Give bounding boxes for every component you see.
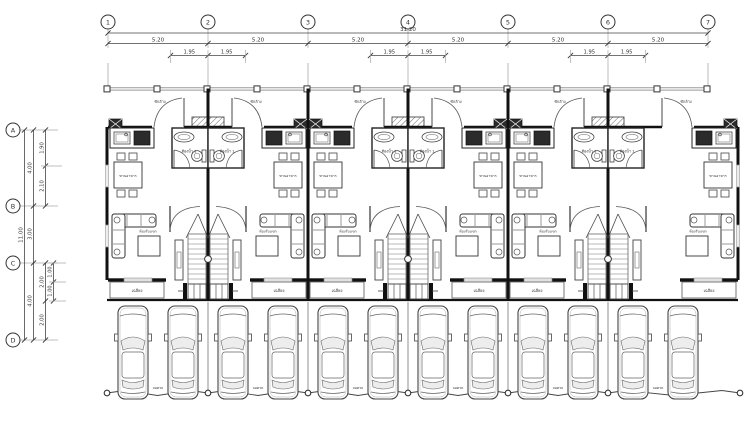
row-dim-label: 4.00 (28, 295, 34, 307)
entry-side-wall (629, 283, 633, 300)
pillow (726, 249, 732, 255)
bathroom-label: ห้องน้ำ 1 (182, 148, 198, 154)
dining-label: ทานอาหาร (119, 174, 136, 178)
pillow (549, 217, 555, 223)
entry-side-wall (183, 283, 187, 300)
unit-2: ซักล้างห้องน้ำ 1ทานอาหารห้องรับแขกเฉลียง (208, 98, 308, 300)
grid-bubble-label: 3 (306, 19, 310, 27)
row-dim-label: 4.00 (28, 162, 34, 174)
chair (291, 190, 299, 197)
halfbay-dim-label: 1.95 (584, 50, 596, 56)
windshield (621, 337, 645, 350)
mirror (598, 334, 602, 341)
windshield (221, 337, 245, 350)
car (265, 306, 302, 399)
unit-3: ซักล้างห้องน้ำ 1ทานอาหารห้องรับแขกเฉลียง (308, 98, 408, 300)
mirror (365, 334, 369, 341)
boundary-post (205, 390, 211, 396)
mirror (465, 334, 469, 341)
boundary-post (505, 390, 511, 396)
bathroom-label: ห้องน้ำ 1 (582, 148, 598, 154)
newel-column (605, 256, 612, 263)
chair (317, 190, 325, 197)
fence-post (354, 86, 360, 92)
stair-rail (375, 240, 383, 280)
entry-steps (410, 284, 428, 299)
boundary-post (104, 390, 110, 396)
windshield (521, 337, 545, 350)
car (515, 306, 552, 399)
basin (222, 132, 242, 142)
entry-steps (188, 284, 206, 299)
living-label: ห้องรับแขก (689, 229, 706, 234)
chair (721, 153, 729, 160)
roof (322, 352, 344, 378)
pillow (461, 217, 467, 223)
pillow (261, 217, 267, 223)
mirror (498, 334, 502, 341)
halfbay-dim-label: 1.95 (421, 50, 433, 56)
car (365, 306, 402, 399)
mirror (665, 334, 669, 341)
side-window (106, 165, 108, 187)
dining-label: ทานอาหาร (319, 174, 336, 178)
dining-label: ทานอาหาร (709, 174, 726, 178)
unit-1: ซักล้างห้องน้ำ 1ทานอาหารห้องรับแขกเฉลียง (108, 98, 208, 300)
grid-bubble-label: D (10, 336, 15, 344)
sub-dim-label: 2.10 (40, 180, 46, 192)
mirror (565, 334, 569, 341)
parking-label: จอดรถ (653, 386, 664, 390)
mirror (115, 334, 119, 341)
car (115, 306, 152, 399)
inner-dim-label: 1.00 (48, 266, 54, 277)
car (615, 306, 652, 399)
mirror (215, 334, 219, 341)
roof (472, 352, 494, 378)
grid-bubble-label: 2 (206, 19, 210, 27)
stair-rail (233, 240, 241, 280)
bathroom-label: ห้องน้ำ 1 (420, 148, 436, 154)
boundary-post (405, 390, 411, 396)
party-wall (607, 89, 610, 301)
parking-label: จอดรถ (353, 386, 364, 390)
mirror (165, 334, 169, 341)
unit-5: ซักล้างห้องน้ำ 1ทานอาหารห้องรับแขกเฉลียง (508, 98, 608, 300)
pillow (314, 249, 320, 255)
bay-dim-label: 5.20 (152, 38, 165, 44)
bay-dim-label: 5.20 (252, 38, 265, 44)
mirror (298, 334, 302, 341)
chair (329, 153, 337, 160)
windshield (421, 337, 445, 350)
halfbay-dim-label: 1.95 (184, 50, 196, 56)
windshield (121, 337, 145, 350)
mirror (315, 334, 319, 341)
laundry-label: ซักล้าง (250, 99, 261, 104)
parking-area: จอดรถจอดรถจอดรถจอดรถจอดรถจอดรถ (104, 302, 743, 399)
unit-6: ซักล้างห้องน้ำ 1ทานอาหารห้องรับแขกเฉลียง (608, 98, 738, 300)
chair (279, 153, 287, 160)
parking-label: จอดรถ (453, 386, 464, 390)
chair (721, 190, 729, 197)
basin (174, 132, 194, 142)
mirror (398, 334, 402, 341)
unit-4: ซักล้างห้องน้ำ 1ทานอาหารห้องรับแขกเฉลียง (408, 98, 508, 300)
chair (709, 153, 717, 160)
boundary-post (305, 390, 311, 396)
laundry-label: ซักล้าง (450, 99, 461, 104)
newel-column (205, 256, 212, 263)
bathroom-label: ห้องน้ำ 1 (220, 148, 236, 154)
stove (334, 131, 350, 145)
side-window (737, 225, 739, 247)
entry-steps (210, 284, 228, 299)
mirror (248, 334, 252, 341)
living-label: ห้องรับแขก (459, 229, 476, 234)
car (565, 306, 602, 399)
chair (129, 153, 137, 160)
pillow (314, 217, 320, 223)
fence-post (704, 86, 710, 92)
living-label: ห้องรับแขก (339, 229, 356, 234)
stove (266, 131, 282, 145)
pillow (349, 217, 355, 223)
stove (696, 131, 712, 145)
chair (117, 190, 125, 197)
pillow (296, 249, 302, 255)
windshield (471, 337, 495, 350)
windshield (571, 337, 595, 350)
windshield (671, 337, 695, 350)
grid-bubble-label: 7 (706, 19, 710, 27)
car (165, 306, 202, 399)
coffee-table (686, 236, 708, 256)
roof (672, 352, 694, 378)
halfbay-dim-label: 1.95 (384, 50, 396, 56)
roof (122, 352, 144, 378)
chair (517, 153, 525, 160)
newel-column (405, 256, 412, 263)
mirror (348, 334, 352, 341)
pillow (114, 217, 120, 223)
living-label: ห้องรับแขก (539, 229, 556, 234)
pillow (514, 249, 520, 255)
mirror (148, 334, 152, 341)
roof (222, 352, 244, 378)
porch-label: เฉลียง (474, 288, 485, 293)
mirror (548, 334, 552, 341)
dining-label: ทานอาหาร (519, 174, 536, 178)
mirror (698, 334, 702, 341)
bay-dim-label: 5.20 (552, 38, 565, 44)
boundary-post (737, 390, 743, 396)
chair (291, 153, 299, 160)
windshield (321, 337, 345, 350)
car (465, 306, 502, 399)
chair (709, 190, 717, 197)
mirror (615, 334, 619, 341)
pillow (691, 217, 697, 223)
basin (574, 132, 594, 142)
dining-label: ทานอาหาร (479, 174, 496, 178)
roof (422, 352, 444, 378)
windshield (371, 337, 395, 350)
bay-dim-label: 5.20 (352, 38, 365, 44)
side-window (737, 165, 739, 187)
basin (374, 132, 394, 142)
roof (572, 352, 594, 378)
party-wall (207, 89, 210, 301)
dining-label: ทานอาหาร (279, 174, 296, 178)
overall-dim-label: 11.00 (19, 227, 25, 243)
parking-label: จอดรถ (553, 386, 564, 390)
left-dimension-grid: ABCD11.004.003.004.001.902.102.002.001.0… (6, 123, 66, 347)
top-dimension-grid: 123456731.205.205.205.205.205.205.201.95… (101, 15, 715, 63)
grid-bubble-label: 5 (506, 19, 510, 27)
windshield (171, 337, 195, 350)
entry-steps (610, 284, 628, 299)
sub-dim-label: 2.00 (40, 314, 46, 326)
roof (372, 352, 394, 378)
chair (529, 153, 537, 160)
entry-side-wall (429, 283, 433, 300)
mirror (265, 334, 269, 341)
grid-bubble-label: 6 (606, 19, 610, 27)
roof (272, 352, 294, 378)
pillow (149, 217, 155, 223)
party-wall (407, 89, 410, 301)
drawing-sheet: 123456731.205.205.205.205.205.205.201.95… (0, 0, 750, 424)
car (215, 306, 252, 399)
grid-bubble-label: C (11, 259, 16, 267)
bay-dim-label: 5.20 (452, 38, 465, 44)
side-window (106, 225, 108, 247)
mirror (198, 334, 202, 341)
entry-side-wall (229, 283, 233, 300)
mirror (515, 334, 519, 341)
chair (129, 190, 137, 197)
porch-label: เฉลียง (532, 288, 543, 293)
bathroom-label: ห้องน้ำ 1 (382, 148, 398, 154)
floorplan-drawing: 123456731.205.205.205.205.205.205.201.95… (0, 0, 750, 424)
pillow (496, 217, 502, 223)
pillow (114, 249, 120, 255)
stove (134, 131, 150, 145)
coffee-table (538, 236, 560, 256)
fence-post (154, 86, 160, 92)
chair (491, 153, 499, 160)
stair-rail (633, 240, 641, 280)
fence-post (454, 86, 460, 92)
sub-dim-label: 2.00 (40, 276, 46, 288)
chair (279, 190, 287, 197)
halfbay-dim-label: 1.95 (621, 50, 633, 56)
row-dim-label: 3.00 (28, 228, 34, 240)
entry-steps (388, 284, 406, 299)
bathroom-label: ห้องน้ำ 1 (620, 148, 636, 154)
halfbay-dim-label: 1.95 (221, 50, 233, 56)
stove (466, 131, 482, 145)
grid-bubble-label: 1 (106, 19, 110, 27)
left-wall (106, 127, 109, 280)
chair (517, 190, 525, 197)
basin (622, 132, 642, 142)
porch-label: เฉลียง (332, 288, 343, 293)
parking-label: จอดรถ (253, 386, 264, 390)
boundary-post (605, 390, 611, 396)
pillow (726, 217, 732, 223)
coffee-table (338, 236, 360, 256)
living-label: ห้องรับแขก (259, 229, 276, 234)
fence-post (104, 86, 110, 92)
pillow (496, 249, 502, 255)
grid-bubble-label: B (11, 202, 15, 210)
coffee-table (256, 236, 278, 256)
porch-label: เฉลียง (132, 288, 143, 293)
overall-dim-label: 31.20 (400, 27, 416, 33)
entry-side-wall (583, 283, 587, 300)
mirror (648, 334, 652, 341)
chair (117, 153, 125, 160)
bay-dim-label: 5.20 (652, 38, 665, 44)
coffee-table (456, 236, 478, 256)
laundry-label: ซักล้าง (154, 99, 165, 104)
roof (522, 352, 544, 378)
chair (479, 153, 487, 160)
right-wall (737, 127, 740, 280)
porch-label: เฉลียง (704, 288, 715, 293)
car (665, 306, 702, 399)
chair (479, 190, 487, 197)
fence-post (554, 86, 560, 92)
stair-rail (433, 240, 441, 280)
stair-rail (575, 240, 583, 280)
pillow (296, 217, 302, 223)
fence-post (254, 86, 260, 92)
porch-label: เฉลียง (274, 288, 285, 293)
windshield (271, 337, 295, 350)
fence-post (654, 86, 660, 92)
entry-side-wall (383, 283, 387, 300)
chair (329, 190, 337, 197)
mirror (448, 334, 452, 341)
grid-bubble-label: 4 (406, 19, 410, 27)
parking-label: จอดรถ (153, 386, 164, 390)
laundry-label: ซักล้าง (354, 99, 365, 104)
stair-rail (175, 240, 183, 280)
stove (534, 131, 550, 145)
chair (491, 190, 499, 197)
car (315, 306, 352, 399)
roof (172, 352, 194, 378)
mirror (415, 334, 419, 341)
chair (529, 190, 537, 197)
inner-dim-label: 1.00 (48, 285, 54, 296)
chair (317, 153, 325, 160)
sub-dim-label: 1.90 (40, 142, 46, 154)
pillow (514, 217, 520, 223)
basin (422, 132, 442, 142)
car (415, 306, 452, 399)
entry-steps (588, 284, 606, 299)
coffee-table (138, 236, 160, 256)
roof (622, 352, 644, 378)
laundry-label: ซักล้าง (554, 99, 565, 104)
living-label: ห้องรับแขก (139, 229, 156, 234)
grid-bubble-label: A (11, 126, 16, 134)
laundry-label: ซักล้าง (680, 99, 691, 104)
